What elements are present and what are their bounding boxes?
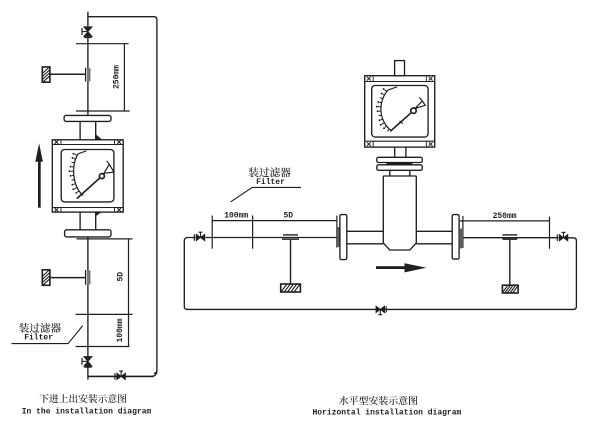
svg-text:5D: 5D <box>116 272 125 282</box>
svg-text:100mm: 100mm <box>116 318 125 342</box>
svg-text:100mm: 100mm <box>224 211 248 220</box>
svg-text:Filter: Filter <box>256 178 285 187</box>
svg-text:Horizontal installation diagra: Horizontal installation diagram <box>313 409 462 418</box>
svg-text:250mm: 250mm <box>112 65 121 89</box>
svg-text:250mm: 250mm <box>493 212 517 221</box>
svg-text:5D: 5D <box>283 212 293 221</box>
svg-text:Filter: Filter <box>24 333 53 342</box>
svg-text:In the installation diagram: In the installation diagram <box>22 407 152 416</box>
